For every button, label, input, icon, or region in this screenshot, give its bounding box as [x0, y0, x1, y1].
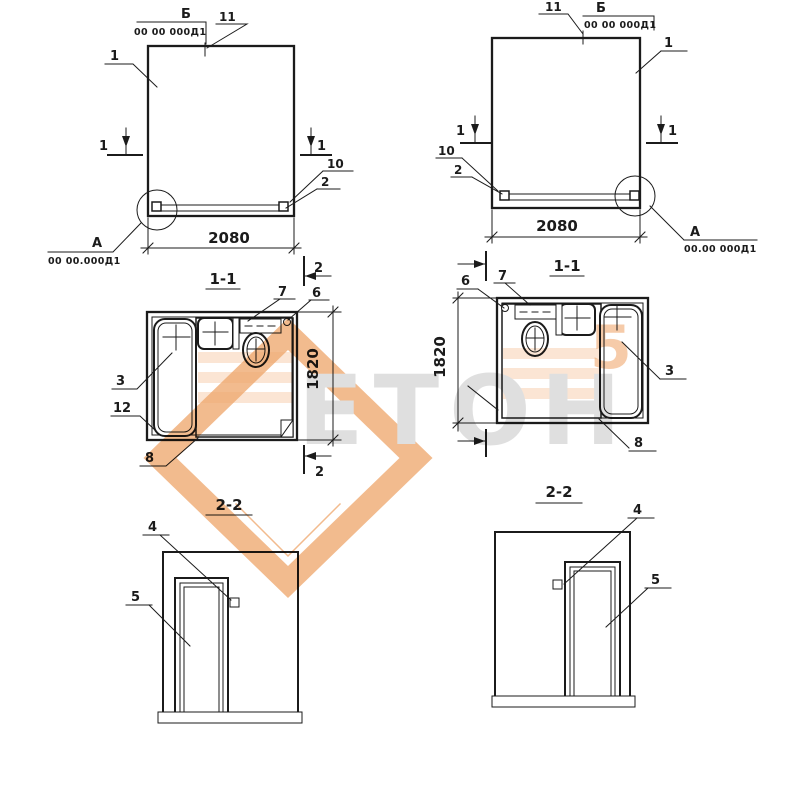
label-insert-11: 11 [219, 10, 236, 24]
leader-node-a [650, 206, 757, 240]
watermark-letters: ЕТОН [298, 355, 631, 467]
hinge-plate [553, 580, 562, 589]
mark-view-b: Б [596, 1, 606, 16]
vent-hole [502, 305, 509, 312]
section-mark-1-left: 1 [456, 116, 491, 143]
washbasin [198, 318, 233, 349]
view-title: 1-1 [553, 257, 580, 275]
corner-notch [281, 420, 293, 437]
svg-text:2: 2 [315, 465, 324, 480]
svg-text:1: 1 [668, 124, 677, 139]
label-cistern-7: 7 [278, 285, 287, 300]
partition [556, 304, 562, 335]
front-view-right: 11 Б 00 00 000Д1 1 1 1 10 2 А 00.00 000Д… [436, 0, 757, 255]
label-vent-6: 6 [312, 286, 321, 301]
anchor-plate [279, 202, 288, 211]
door-section-left: 2-2 4 5 [126, 496, 302, 723]
label-door-5: 5 [651, 573, 660, 588]
label-cistern-7: 7 [498, 269, 507, 284]
hinge-plate [230, 598, 239, 607]
section-mark-2-top: 2 [304, 257, 331, 285]
label-apron-12: 12 [113, 401, 131, 416]
svg-text:1: 1 [317, 139, 326, 154]
view-title: 1-1 [209, 270, 236, 288]
detail-code: 00.00 000Д1 [684, 244, 757, 255]
svg-text:1: 1 [99, 139, 108, 154]
partition [233, 318, 239, 349]
front-view-left: Б 00 00 000Д1 11 1 1 1 10 2 А 00 00.000Д… [48, 7, 353, 267]
leader-1 [636, 51, 687, 73]
label-fitting-2: 2 [321, 175, 329, 189]
assembly-code: 00 00 000Д1 [134, 27, 206, 38]
mark-view-b: Б [181, 7, 191, 22]
svg-text:2080: 2080 [536, 217, 578, 235]
technical-drawing: Б 00 00 000Д1 11 1 1 1 10 2 А 00 00.000Д… [0, 0, 800, 800]
label-hinge-4: 4 [633, 503, 642, 518]
base-strip [492, 696, 635, 707]
label-node-a: А [92, 236, 102, 251]
panel-outline [492, 38, 640, 208]
label-node-a: А [690, 225, 700, 240]
view-title: 2-2 [545, 483, 572, 501]
panel-elevation [495, 532, 630, 700]
dim-2080: 2080 [485, 210, 647, 243]
anchor-plate [152, 202, 161, 211]
section-mark-1-right: 1 [301, 128, 331, 155]
section-mark-1-left: 1 [99, 128, 142, 155]
dim-2080: 2080 [141, 218, 301, 254]
svg-text:1: 1 [456, 124, 465, 139]
anchor-plate [500, 191, 509, 200]
panel-outline [148, 46, 294, 216]
anchor-plate [630, 191, 639, 200]
label-hinge-4: 4 [148, 520, 157, 535]
section-mark-1-right: 1 [647, 116, 677, 143]
label-fitting-10: 10 [327, 157, 344, 171]
label-bath-3: 3 [116, 374, 125, 389]
label-fitting-2: 2 [454, 163, 462, 177]
detail-code: 00 00.000Д1 [48, 256, 121, 267]
label-panel-1: 1 [110, 49, 119, 64]
label-panel-1: 1 [664, 36, 673, 51]
label-bath-3: 3 [665, 364, 674, 379]
label-fitting-10: 10 [438, 144, 455, 158]
label-door-5: 5 [131, 590, 140, 605]
svg-text:2: 2 [314, 261, 323, 276]
label-vent-6: 6 [461, 274, 470, 289]
base-strip [158, 712, 302, 723]
label-insert-11: 11 [545, 0, 562, 14]
svg-text:2080: 2080 [208, 229, 250, 247]
door-section-right: 2-2 4 5 [492, 483, 671, 707]
label-floor-8: 8 [634, 436, 643, 451]
watermark-accent: 5 [590, 313, 632, 383]
assembly-code: 00 00 000Д1 [584, 20, 656, 31]
blueprint-page: Б 00 00 000Д1 11 1 1 1 10 2 А 00 00.000Д… [0, 0, 800, 800]
cistern [515, 305, 556, 319]
